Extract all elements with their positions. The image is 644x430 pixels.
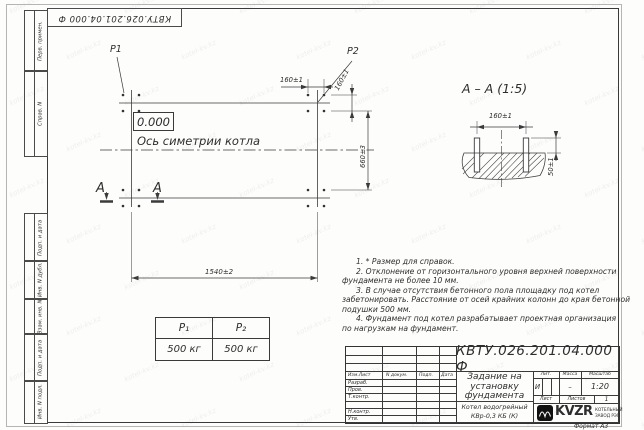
product-name-line: КВр-0,3 КБ (К) [456, 411, 533, 421]
note-line: фундамента не более 10 мм. [342, 276, 459, 285]
lit-value: И [533, 378, 542, 395]
note-line: забетонировать. Расстояние от осей крайн… [342, 295, 630, 304]
company-tagline-1: КОТЕЛЬНЫЙ [595, 407, 622, 412]
note-line: подушки 500 мм. [342, 305, 411, 314]
loads-table: P₁ P₂ 500 кг 500 кг [155, 317, 270, 361]
axis-label: Ось симетрии котла [137, 134, 260, 148]
frame-field-podp-data-1: Подп. и дата [24, 213, 48, 262]
listov-value: 1 [594, 395, 619, 403]
header-massa: Масса [559, 371, 581, 378]
note-line: 2. Отклонение от горизонтального уровня … [356, 267, 616, 276]
format-note: Формат А3 [574, 423, 608, 430]
note-line: 3. В случае отсутствия бетонного пола пл… [356, 286, 599, 295]
header-list: Лист [533, 395, 559, 403]
doc-name-line: фундамента [456, 391, 533, 401]
col-data: Дата [441, 373, 453, 378]
note-line: 1. * Размер для справок. [356, 257, 455, 266]
load-point-p2-label: P2 [347, 46, 359, 57]
note-line: по нагрузкам на фундамент. [342, 324, 458, 333]
header-masshtab: Масштаб [581, 371, 619, 378]
frame-field-perv-primen: Перв. примен. [24, 10, 48, 72]
dim-bolt-spacing-h: 160±1 [280, 76, 303, 84]
loads-table-header-p2: P₂ [213, 318, 269, 338]
col-n-dokum: N докум. [386, 373, 407, 378]
loads-table-header-p1: P₁ [156, 318, 212, 338]
section-letter-left: А [96, 181, 105, 196]
dim-foundation-width: 1540±2 [205, 268, 233, 276]
loads-table-value-p1: 500 кг [156, 339, 212, 359]
header-lit: Лит. [533, 371, 559, 378]
frame-field-inv-podl: Инв. N подл. [24, 380, 48, 424]
doc-number: КВТУ.026.201.04.000 Ф [456, 347, 619, 371]
note-line: 4. Фундамент под котел разрабатывает про… [356, 314, 616, 323]
frame-field-vzam-inv: Взам. инв. N [24, 298, 48, 335]
kvzr-logo-text: KVZR [555, 404, 593, 419]
section-view-title: А – А (1:5) [462, 81, 527, 96]
col-podp: Подп. [419, 373, 433, 378]
section-dim-height: 50±1 [547, 157, 555, 176]
col-izm-list: Изм.Лист [348, 373, 370, 378]
drawing-sheet: kotel-kv.kzkotel-kv.kzkotel-kv.kzkotel-k… [0, 0, 644, 430]
frame-field-inv-dubl: Инв. N дубл. [24, 260, 48, 300]
header-listov: Листов [559, 395, 594, 403]
row-nkontr: Н.контр. [348, 409, 370, 415]
load-point-p1-label: P1 [110, 44, 122, 55]
massa-value: – [559, 378, 581, 395]
row-tkontr: Т.контр. [348, 394, 370, 400]
top-doc-number-stamp: КВТУ.026.201.04.000 Ф [47, 8, 182, 27]
frame-field-podp-data-2: Подп. и дата [24, 333, 48, 382]
section-letter-right: А [153, 181, 162, 196]
company-tagline-2: ЗАВОД РЭП [595, 413, 620, 418]
frame-field-sprav-n: Справ. N [24, 70, 48, 157]
row-utv: Утв. [348, 416, 359, 422]
scale-value: 1:20 [581, 378, 619, 395]
title-block: КВТУ.026.201.04.000 Ф Изм.Лист N докум. … [345, 346, 620, 424]
elevation-mark: 0.000 [133, 112, 174, 131]
section-dim-width: 160±1 [489, 112, 512, 120]
row-razrab: Разраб. [348, 380, 368, 386]
kvzr-logo-emblem [537, 405, 553, 421]
dim-foundation-height: 660±3 [359, 145, 367, 168]
doc-name-line: Задание на [456, 372, 533, 382]
row-prov: Пров. [348, 387, 363, 393]
loads-table-value-p2: 500 кг [213, 339, 269, 359]
